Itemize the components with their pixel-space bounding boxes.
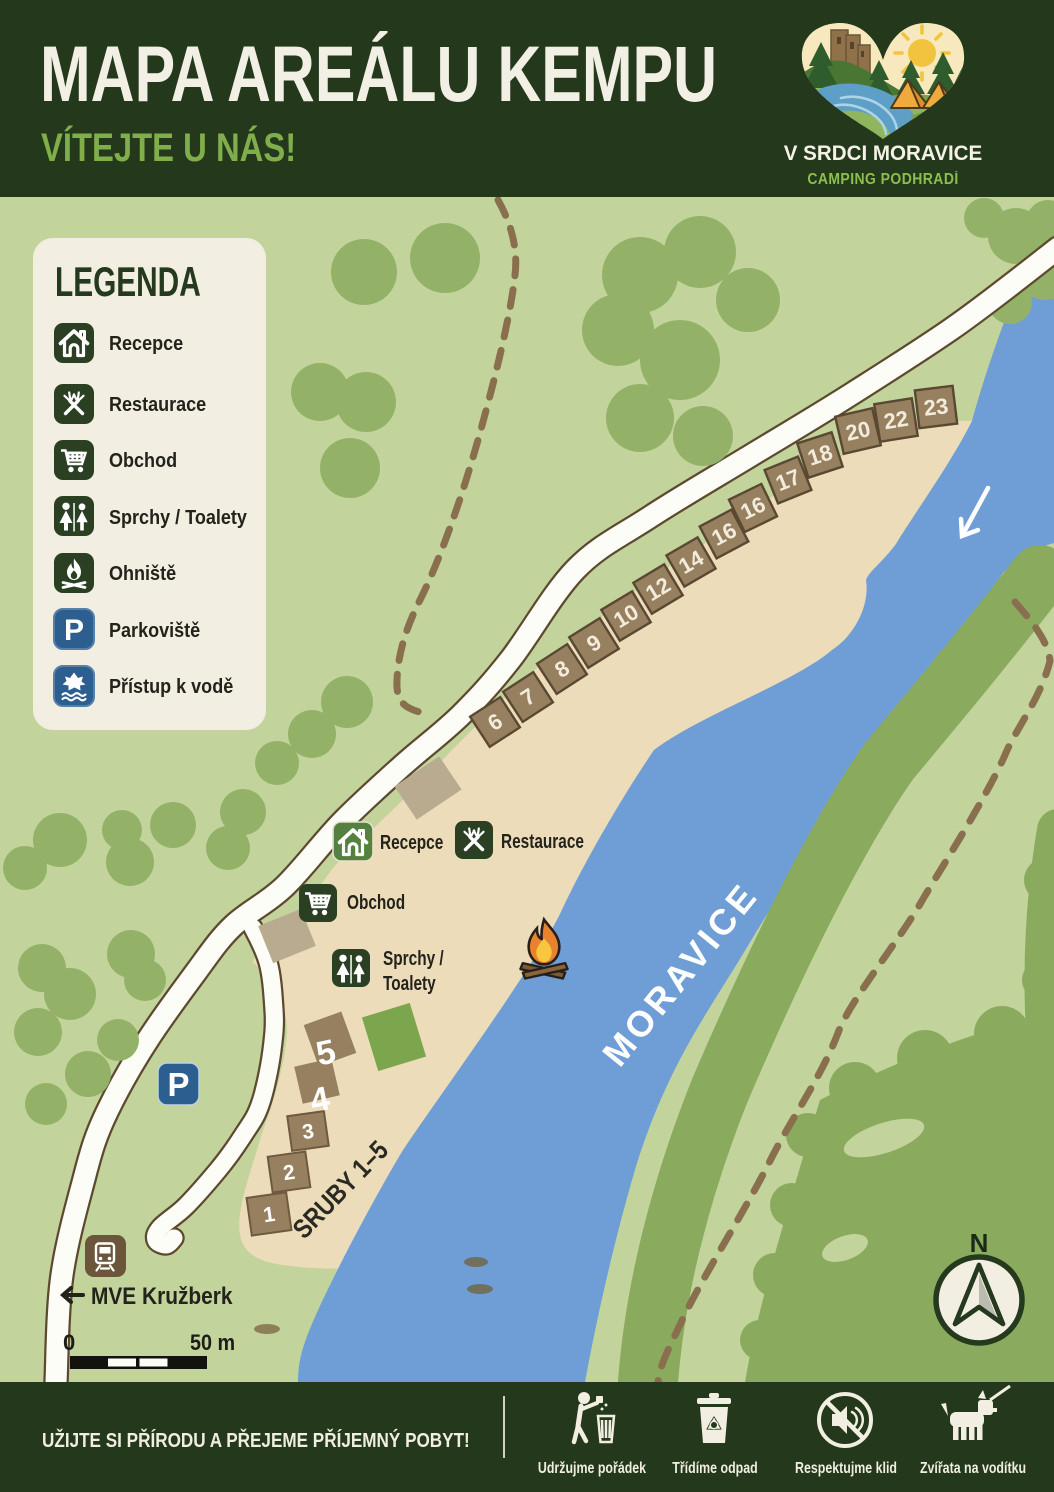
svg-text:LEGENDA: LEGENDA bbox=[55, 258, 201, 305]
svg-text:Sprchy / Toalety: Sprchy / Toalety bbox=[109, 507, 247, 529]
svg-text:50 m: 50 m bbox=[190, 1331, 235, 1355]
svg-text:Ohniště: Ohniště bbox=[109, 563, 176, 585]
svg-text:Obchod: Obchod bbox=[109, 450, 177, 472]
svg-text:22: 22 bbox=[882, 406, 910, 435]
svg-text:Toalety: Toalety bbox=[383, 972, 436, 994]
svg-text:Recepce: Recepce bbox=[380, 831, 443, 853]
svg-text:Restaurace: Restaurace bbox=[501, 830, 584, 852]
svg-text:P: P bbox=[64, 614, 84, 647]
svg-text:Restaurace: Restaurace bbox=[109, 394, 206, 416]
svg-text:P: P bbox=[167, 1066, 189, 1103]
svg-text:Obchod: Obchod bbox=[347, 891, 405, 913]
svg-text:Přístup k vodě: Přístup k vodě bbox=[109, 676, 233, 698]
svg-text:Recepce: Recepce bbox=[109, 333, 183, 355]
svg-text:MVE Kružberk: MVE Kružberk bbox=[91, 1283, 233, 1310]
svg-text:0: 0 bbox=[63, 1330, 75, 1355]
svg-text:Parkoviště: Parkoviště bbox=[109, 620, 200, 642]
svg-text:N: N bbox=[970, 1228, 989, 1258]
svg-text:Sprchy /: Sprchy / bbox=[383, 947, 444, 969]
svg-text:23: 23 bbox=[922, 393, 949, 421]
